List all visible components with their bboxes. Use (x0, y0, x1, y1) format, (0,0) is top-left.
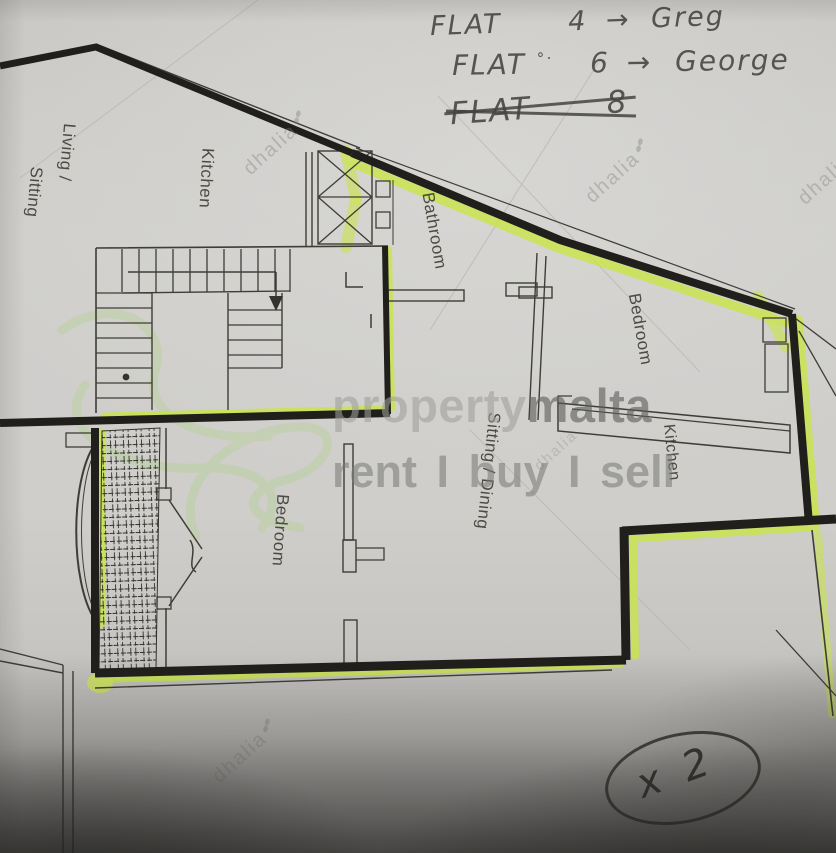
note-flat-word: FLAT (430, 9, 503, 42)
multiplier-text: x 2 (630, 737, 721, 808)
watermark-tagline: rent I buy I sell (332, 446, 675, 498)
note-flat-number: 6 (590, 46, 610, 79)
living-line2: Sitting (22, 166, 46, 218)
watermark-brand: propertymalta (332, 378, 652, 433)
note-mark: °· (537, 49, 554, 67)
arrow-right-icon: → (626, 45, 652, 78)
floorplan-photo: Living / Sitting Kitchen Bathroom Bedroo… (0, 0, 836, 853)
room-label-kitchen-upper: Kitchen (194, 148, 217, 209)
watermark-brand-light: property (332, 379, 527, 432)
handwritten-note-flat6: FLAT °· 6 → George (452, 43, 790, 82)
note-tenant-name: Greg (651, 1, 726, 35)
watermark-brand-dark: malta (527, 379, 652, 432)
note-tenant-name: George (675, 43, 790, 78)
room-label-living-sitting: Living / Sitting (22, 120, 79, 221)
note-flat-number: 4 (568, 6, 588, 38)
note-flat-word: FLAT (452, 48, 527, 82)
arrow-right-icon: → (605, 4, 631, 36)
